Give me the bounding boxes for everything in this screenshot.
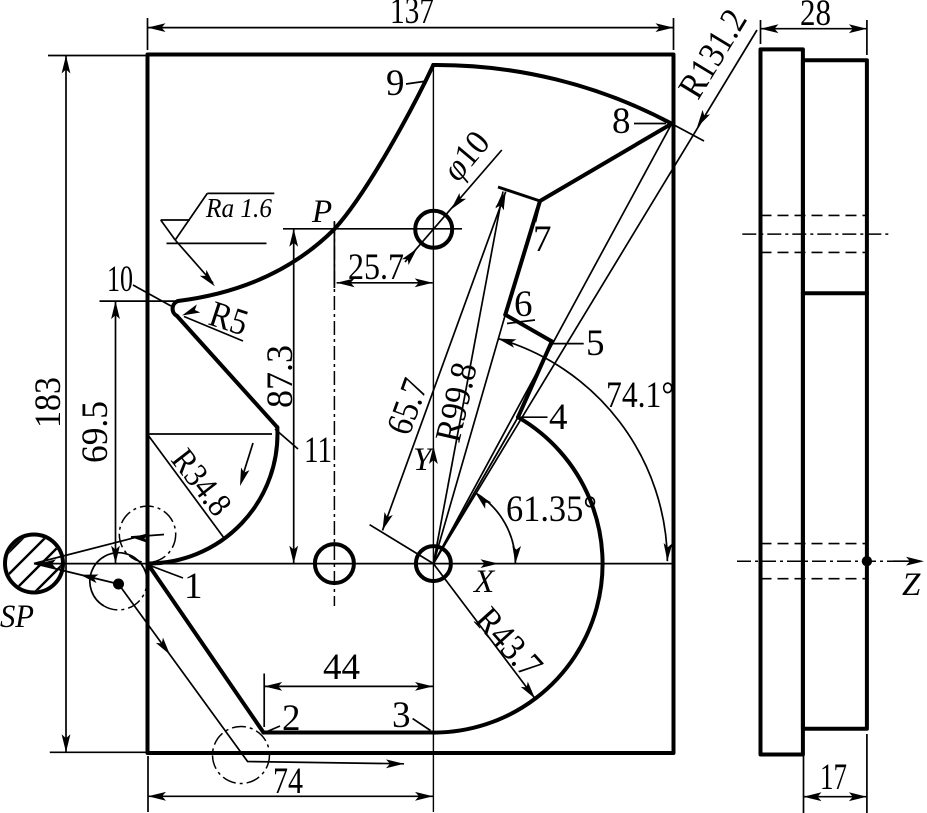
svg-text:Ra 1.6: Ra 1.6 (205, 193, 272, 223)
svg-text:74: 74 (273, 761, 303, 802)
svg-text:137: 137 (390, 0, 434, 32)
svg-text:8: 8 (612, 101, 631, 142)
svg-text:5: 5 (586, 323, 605, 364)
svg-text:4: 4 (549, 397, 568, 438)
svg-text:69.5: 69.5 (75, 401, 116, 463)
svg-text:61.35°: 61.35° (506, 489, 597, 530)
svg-text:Z: Z (902, 567, 921, 603)
svg-text:3: 3 (392, 695, 411, 736)
svg-text:25.7: 25.7 (348, 247, 404, 288)
svg-text:183: 183 (28, 377, 69, 428)
svg-text:17: 17 (820, 757, 847, 798)
svg-text:P: P (311, 194, 332, 230)
svg-text:9: 9 (386, 63, 405, 104)
svg-text:28: 28 (800, 0, 831, 34)
svg-text:11: 11 (304, 430, 332, 471)
svg-text:7: 7 (533, 219, 552, 260)
svg-text:X: X (472, 564, 496, 600)
svg-text:SP: SP (0, 599, 34, 635)
svg-text:74.1°: 74.1° (606, 375, 674, 416)
svg-text:44: 44 (323, 647, 360, 688)
svg-text:2: 2 (282, 698, 301, 739)
svg-text:6: 6 (514, 284, 533, 325)
svg-text:1: 1 (184, 566, 203, 607)
svg-text:10: 10 (107, 259, 133, 300)
svg-text:87.3: 87.3 (260, 345, 301, 408)
